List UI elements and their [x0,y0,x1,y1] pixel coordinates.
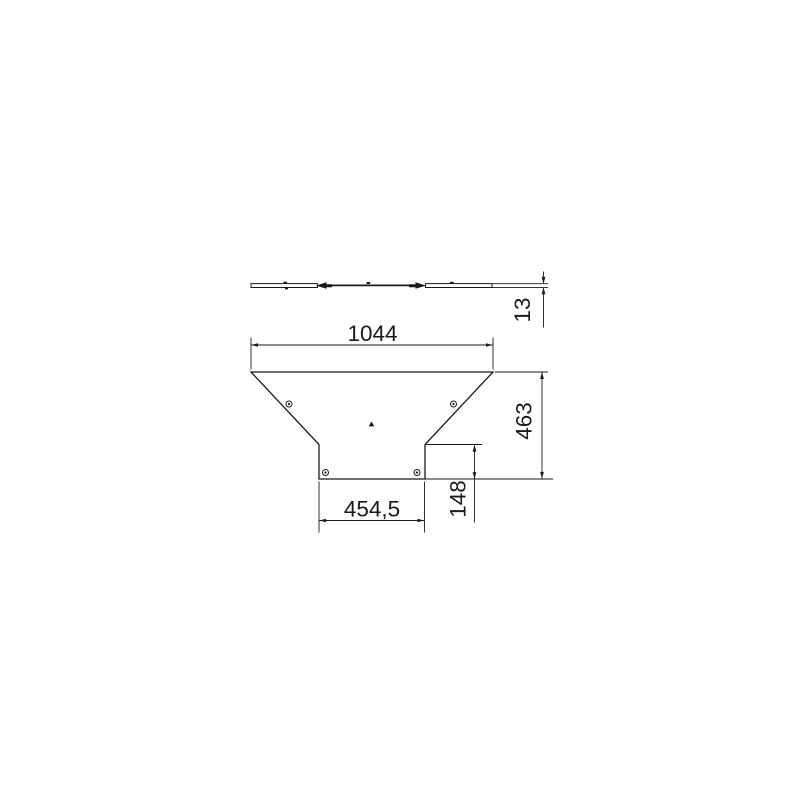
center-mark-icon [369,422,375,427]
dim-arrow-up-icon [540,372,544,379]
dim-overall-width-label: 1044 [347,321,397,346]
rivet-bottom-left-center [324,471,326,473]
dim-branch-depth-label: 148 [446,480,471,518]
profile-right-plate [426,284,493,288]
plan-view [251,372,553,479]
dim-arrow-down-icon [540,472,544,479]
dim-arrow-up-icon [473,445,477,452]
dim-arrow-left-icon [251,343,258,347]
profile-rivet-mark [450,282,454,284]
profile-rivet-mark [284,282,288,284]
dim-branch-width-label: 454,5 [344,497,400,522]
dim-overall-width: 1044 [251,321,493,370]
dim-arrow-down-icon [542,277,546,284]
dim-arrow-down-icon [473,472,477,479]
latch-left-icon [316,282,332,289]
dim-thickness-label: 13 [510,297,535,322]
dim-arrow-up-icon [542,288,546,295]
dim-overall-depth: 463 [512,372,544,478]
rivet-top-left-center [288,403,290,405]
profile-rivet-mark [285,288,288,290]
dim-arrow-left-icon [319,519,326,523]
dim-arrow-right-icon [418,519,425,523]
dim-overall-depth-label: 463 [512,402,537,440]
rivet-bottom-right-center [416,471,418,473]
latch-right-icon [409,282,426,289]
rivet-top-right-center [452,403,454,405]
side-profile-view [251,282,548,290]
dim-thickness: 13 [510,272,545,328]
drawing-canvas: 13 1044 [0,0,800,800]
technical-drawing: 13 1044 [0,0,800,800]
dim-branch-width: 454,5 [319,482,425,533]
dim-branch-depth: 148 [446,445,477,523]
profile-left-plate [251,284,318,288]
profile-rivet-mark [367,282,371,284]
dim-arrow-right-icon [486,343,493,347]
